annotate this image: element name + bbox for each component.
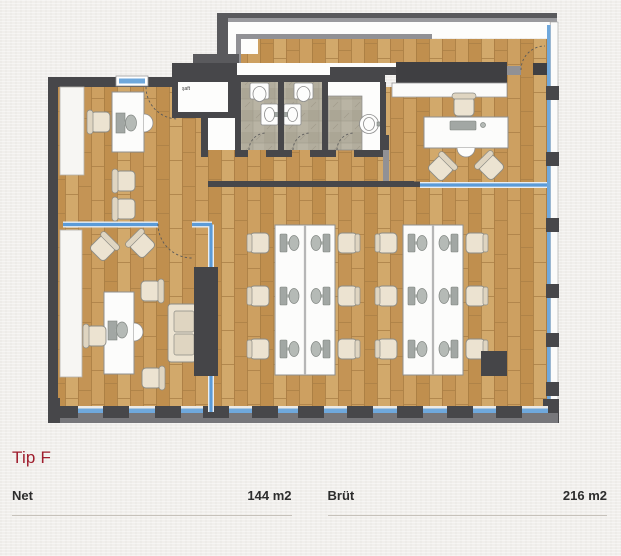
office-chair [83,324,106,348]
guest-chair [141,279,164,303]
window-mullion [298,406,324,418]
office-chair [112,169,135,193]
monitor-icon [117,322,128,338]
divider [328,515,608,516]
reception-counter [392,83,507,97]
window-mullion [546,284,559,298]
window-mullion [155,406,181,418]
plan-type-title: Tip F [12,448,607,468]
window-mullion [546,333,559,347]
window-mullion [103,406,129,418]
guest-chair [142,366,165,390]
window-mullion [397,406,423,418]
floor-plan-svg: şaft [0,0,621,434]
brut-label: Brüt [328,488,355,503]
desk-cluster [247,225,360,375]
window-mullion [252,406,278,418]
window-mullion [496,406,522,418]
toilet-icon [250,83,269,102]
cabinet [194,267,218,376]
monitor-icon [126,115,137,131]
brut-value: 216 m2 [563,488,607,503]
net-label: Net [12,488,33,503]
sink-icon [284,104,301,125]
office-chair [112,197,135,221]
toilet-icon [294,83,313,102]
window-mullion [347,406,373,418]
window-mullion [546,152,559,166]
window-mullion [546,382,559,396]
plan-details: Tip F Net 144 m2 Brüt 216 m2 [0,434,621,516]
office-chair [87,110,110,134]
sofa [168,304,196,362]
window-mullion [203,406,229,418]
net-value: 144 m2 [247,488,291,503]
window-mullion [447,406,473,418]
stat-brut: Brüt 216 m2 [328,488,608,516]
area-stats: Net 144 m2 Brüt 216 m2 [12,488,607,516]
open-office [247,225,507,376]
desk-cluster [375,225,488,375]
divider [12,515,292,516]
floor-plan-image[interactable]: şaft [0,0,621,434]
window [116,76,148,86]
window-mullion [546,218,559,232]
cabinet [481,351,507,376]
office-chair [452,93,476,116]
wardrobe [60,230,82,377]
stat-net: Net 144 m2 [12,488,292,516]
wardrobe [60,87,84,175]
bathrooms [241,82,382,150]
sink-icon [261,104,278,125]
shaft-label: şaft [182,86,191,92]
listing-floorplan-section: şaft [0,0,621,556]
window-mullion [546,86,559,100]
